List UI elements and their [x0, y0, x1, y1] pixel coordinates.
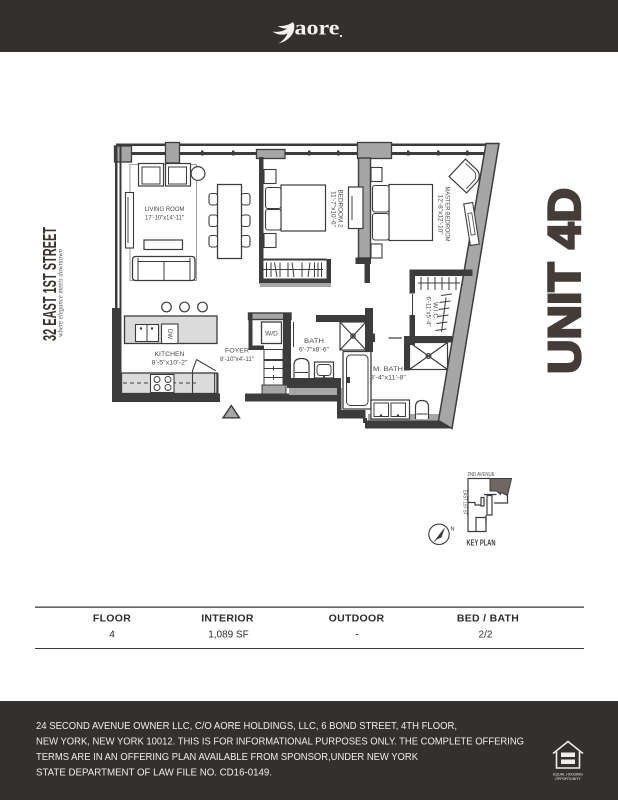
svg-text:M. BATH: M. BATH: [373, 366, 403, 373]
svg-text:2ND AVENUE: 2ND AVENUE: [468, 472, 495, 478]
svg-text:12'-8"x12'-10": 12'-8"x12'-10": [437, 195, 444, 236]
svg-text:FLOOR: FLOOR: [93, 613, 131, 625]
svg-text:W.I.C.: W.I.C.: [432, 302, 439, 320]
svg-text:KITCHEN: KITCHEN: [155, 351, 185, 358]
svg-text:NEW YORK, NEW YORK 10012. THIS: NEW YORK, NEW YORK 10012. THIS IS FOR IN…: [36, 737, 524, 748]
svg-text:6'-11"x5'-4": 6'-11"x5'-4": [425, 297, 432, 328]
svg-text:-: -: [355, 630, 358, 641]
svg-text:11'-7"x10'-6": 11'-7"x10'-6": [330, 191, 337, 228]
svg-text:DW: DW: [166, 329, 172, 339]
svg-text:KEY PLAN: KEY PLAN: [467, 539, 496, 548]
svg-text:N: N: [451, 527, 455, 533]
svg-text:2/2: 2/2: [479, 630, 493, 641]
svg-text:INTERIOR: INTERIOR: [201, 613, 254, 625]
svg-text:1,089 SF: 1,089 SF: [208, 630, 249, 641]
svg-text:TERMS ARE IN AN OFFERING PLAN: TERMS ARE IN AN OFFERING PLAN AVAILABLE …: [36, 752, 418, 763]
svg-text:BATH: BATH: [304, 338, 324, 345]
svg-text:EAST 1ST ST: EAST 1ST ST: [462, 490, 468, 515]
svg-text:UNIT 4D: UNIT 4D: [539, 188, 590, 374]
svg-text:8'-5"x10'-2": 8'-5"x10'-2": [152, 360, 189, 367]
svg-text:OUTDOOR: OUTDOOR: [329, 613, 385, 625]
svg-text:17'-10"x14'-11": 17'-10"x14'-11": [145, 215, 185, 222]
svg-text:6'-7"x8'-6": 6'-7"x8'-6": [299, 347, 330, 354]
svg-text:24 SECOND AVENUE OWNER LLC, C/: 24 SECOND AVENUE OWNER LLC, C/O AORE HOL…: [36, 721, 457, 732]
svg-text:4: 4: [109, 630, 115, 641]
svg-text:FOYER: FOYER: [225, 348, 249, 355]
svg-text:8'-4"x11'-8": 8'-4"x11'-8": [370, 375, 407, 382]
svg-text:8'-10"x4'-11": 8'-10"x4'-11": [220, 356, 255, 363]
svg-text:STATE DEPARTMENT OF LAW FILE N: STATE DEPARTMENT OF LAW FILE NO. CD16-01…: [36, 768, 272, 779]
svg-text:BED / BATH: BED / BATH: [457, 613, 519, 625]
svg-text:aore: aore: [295, 18, 340, 40]
svg-text:where elegance meets downtown: where elegance meets downtown: [57, 249, 65, 337]
svg-text:OPPORTUNITY: OPPORTUNITY: [555, 777, 581, 781]
svg-text:W/D: W/D: [265, 331, 278, 338]
svg-text:LIVING ROOM: LIVING ROOM: [145, 206, 185, 213]
svg-text:BEDROOM 2: BEDROOM 2: [337, 190, 344, 228]
